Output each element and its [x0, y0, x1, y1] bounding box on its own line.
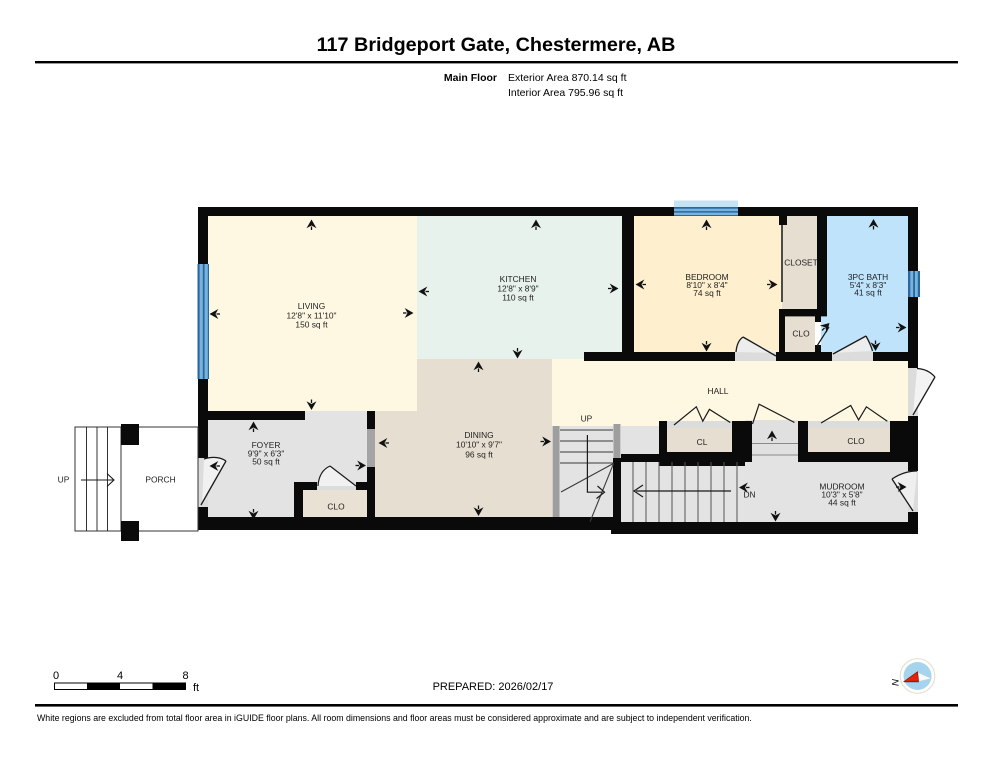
svg-text:8: 8 — [182, 670, 188, 682]
svg-text:CLOSET: CLOSET — [784, 258, 818, 268]
svg-text:PREPARED: 2026/02/17: PREPARED: 2026/02/17 — [433, 681, 554, 693]
svg-text:4: 4 — [117, 670, 123, 682]
svg-text:44 sq ft: 44 sq ft — [828, 498, 856, 508]
svg-text:96 sq ft: 96 sq ft — [465, 449, 493, 459]
svg-text:UP: UP — [581, 414, 593, 424]
svg-text:74 sq ft: 74 sq ft — [693, 288, 721, 298]
svg-text:Exterior Area 870.14 sq ft: Exterior Area 870.14 sq ft — [508, 72, 627, 84]
svg-text:PORCH: PORCH — [145, 475, 175, 485]
svg-text:41 sq ft: 41 sq ft — [854, 288, 882, 298]
svg-text:CL: CL — [697, 437, 708, 447]
svg-text:0: 0 — [53, 670, 59, 682]
svg-text:10'10" x 9'7": 10'10" x 9'7" — [456, 440, 502, 450]
svg-text:CLO: CLO — [847, 436, 865, 446]
svg-text:110 sq ft: 110 sq ft — [502, 293, 534, 303]
svg-text:HALL: HALL — [708, 386, 729, 396]
svg-text:CLO: CLO — [792, 329, 810, 339]
svg-text:CLO: CLO — [327, 502, 345, 512]
svg-text:ft: ft — [193, 682, 199, 694]
svg-text:50 sq ft: 50 sq ft — [252, 456, 280, 466]
svg-text:150 sq ft: 150 sq ft — [295, 320, 328, 330]
svg-text:117 Bridgeport Gate, Chesterme: 117 Bridgeport Gate, Chestermere, AB — [317, 34, 676, 56]
svg-text:N: N — [891, 679, 902, 686]
svg-text:LIVING: LIVING — [298, 301, 325, 311]
svg-text:Main Floor: Main Floor — [444, 72, 497, 84]
svg-text:DINING: DINING — [464, 430, 493, 440]
svg-text:White regions are excluded fro: White regions are excluded from total fl… — [37, 713, 752, 723]
svg-text:Interior Area 795.96 sq ft: Interior Area 795.96 sq ft — [508, 87, 623, 99]
svg-text:UP: UP — [58, 475, 70, 485]
svg-text:KITCHEN: KITCHEN — [500, 274, 537, 284]
